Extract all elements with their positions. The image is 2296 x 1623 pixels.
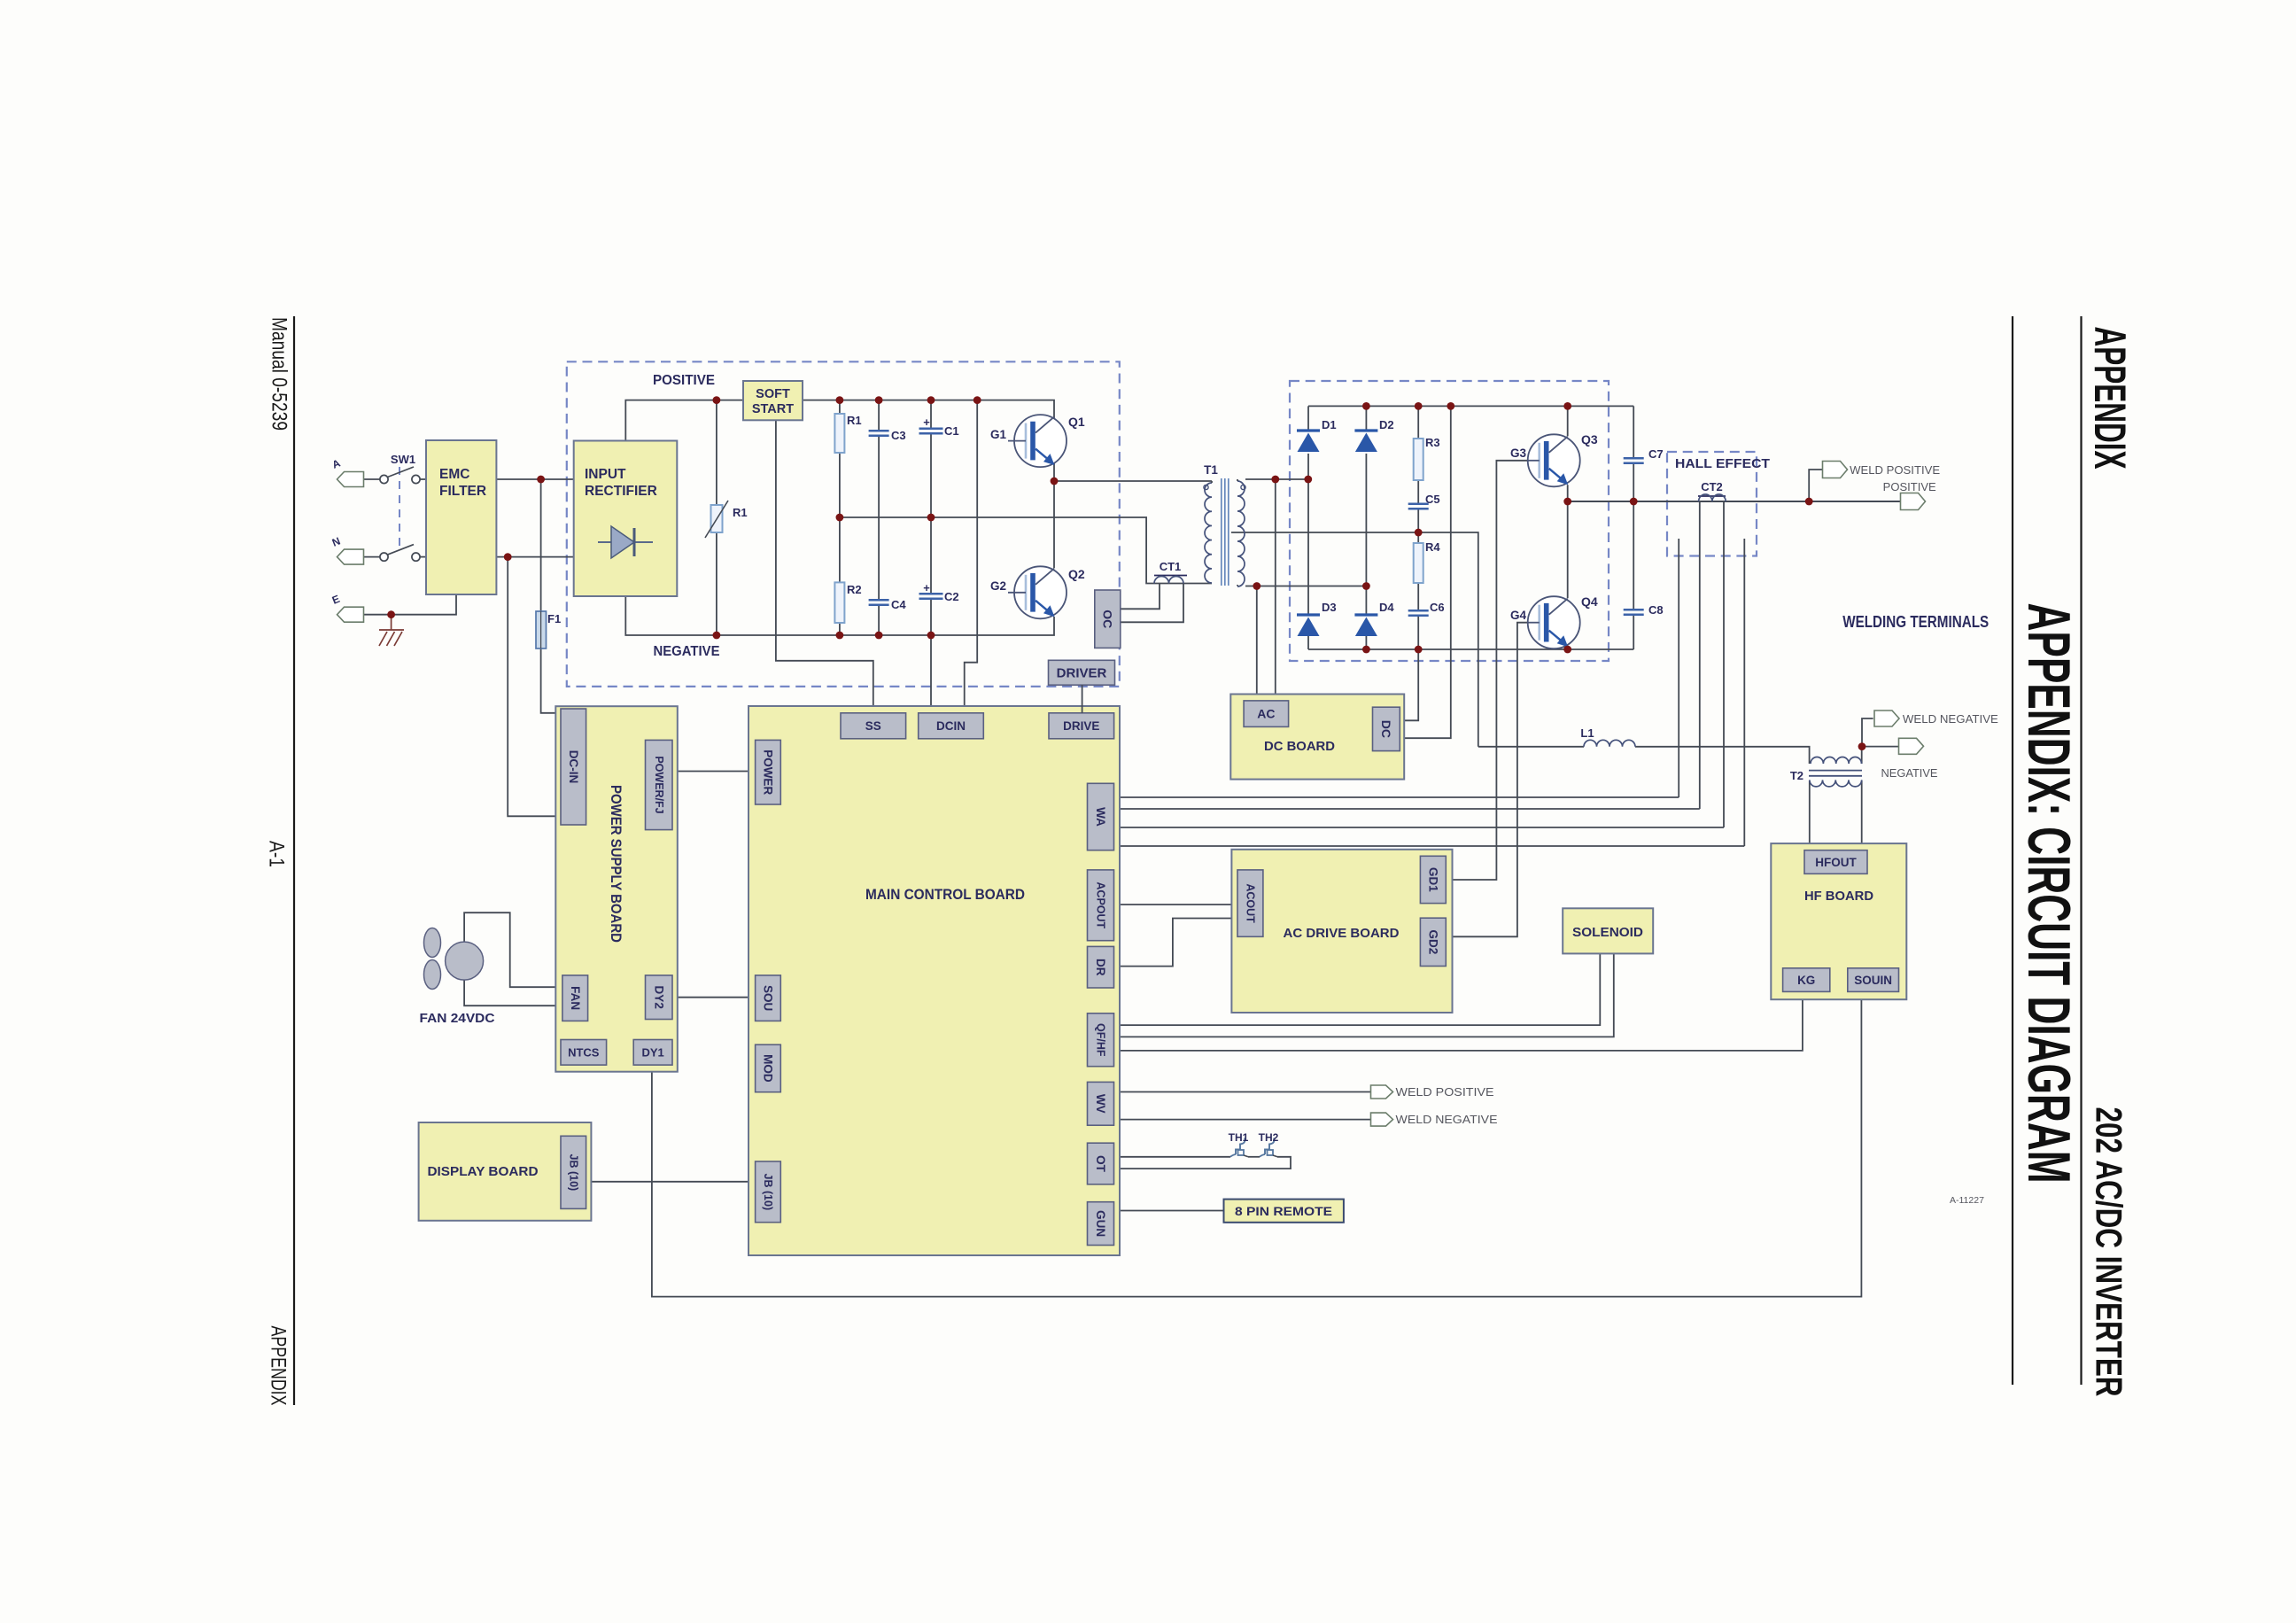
svg-text:OC: OC xyxy=(1100,610,1114,628)
svg-text:MOD: MOD xyxy=(761,1054,774,1083)
svg-text:GD2: GD2 xyxy=(1426,929,1439,954)
svg-text:Q1: Q1 xyxy=(1068,415,1085,429)
svg-text:WV: WV xyxy=(1094,1094,1107,1114)
svg-text:APPENDIX: APPENDIX xyxy=(2085,327,2135,470)
svg-text:G3: G3 xyxy=(1510,447,1527,460)
svg-text:R1: R1 xyxy=(847,414,862,427)
svg-text:DISPLAY BOARD: DISPLAY BOARD xyxy=(428,1164,539,1179)
svg-text:C5: C5 xyxy=(1425,493,1440,506)
svg-text:SOLENOID: SOLENOID xyxy=(1572,926,1643,940)
svg-text:POWER/FJ: POWER/FJ xyxy=(653,756,665,813)
svg-text:DR: DR xyxy=(1094,959,1107,976)
svg-text:D1: D1 xyxy=(1322,418,1337,431)
svg-text:KG: KG xyxy=(1797,974,1815,987)
svg-text:GD1: GD1 xyxy=(1426,867,1439,892)
svg-text:DRIVER: DRIVER xyxy=(1057,666,1107,681)
svg-text:SS: SS xyxy=(865,719,881,733)
svg-text:T2: T2 xyxy=(1790,769,1803,782)
svg-text:NEGATIVE: NEGATIVE xyxy=(1881,767,1938,780)
svg-text:C8: C8 xyxy=(1648,603,1664,617)
svg-text:T1: T1 xyxy=(1204,463,1218,477)
svg-text:C2: C2 xyxy=(944,590,959,603)
svg-text:DC-IN: DC-IN xyxy=(567,750,580,784)
svg-text:DCIN: DCIN xyxy=(936,719,966,733)
svg-text:TH2: TH2 xyxy=(1259,1131,1279,1144)
svg-text:Q3: Q3 xyxy=(1581,432,1598,447)
svg-text:SW1: SW1 xyxy=(391,453,415,466)
svg-text:SOU: SOU xyxy=(761,985,774,1011)
svg-text:POSITIVE: POSITIVE xyxy=(1883,481,1936,493)
svg-text:NTCS: NTCS xyxy=(568,1045,600,1059)
svg-text:+: + xyxy=(923,581,930,594)
svg-text:POWER SUPPLY BOARD: POWER SUPPLY BOARD xyxy=(608,785,624,943)
svg-text:F1: F1 xyxy=(547,612,561,625)
svg-text:SOFT: SOFT xyxy=(756,387,790,401)
svg-text:+: + xyxy=(923,415,930,429)
svg-text:APPENDIX: CIRCUIT DIAGRAM: APPENDIX: CIRCUIT DIAGRAM xyxy=(2015,603,2083,1184)
svg-text:FAN: FAN xyxy=(569,986,582,1010)
svg-text:AC: AC xyxy=(1257,707,1275,721)
svg-text:C6: C6 xyxy=(1430,601,1445,614)
svg-text:WELD POSITIVE: WELD POSITIVE xyxy=(1850,464,1940,477)
svg-text:CT2: CT2 xyxy=(1701,480,1723,493)
svg-text:POSITIVE: POSITIVE xyxy=(653,373,715,388)
svg-text:DRIVE: DRIVE xyxy=(1063,719,1099,733)
svg-text:HFOUT: HFOUT xyxy=(1815,856,1857,869)
svg-text:MAIN CONTROL BOARD: MAIN CONTROL BOARD xyxy=(865,886,1025,903)
svg-text:INPUT: INPUT xyxy=(585,467,626,482)
svg-text:DC: DC xyxy=(1379,720,1393,738)
svg-text:HF BOARD: HF BOARD xyxy=(1804,889,1873,904)
svg-text:DY1: DY1 xyxy=(641,1045,663,1059)
svg-text:D2: D2 xyxy=(1379,418,1394,431)
svg-text:G2: G2 xyxy=(990,579,1006,593)
svg-text:START: START xyxy=(752,402,794,416)
svg-text:NEGATIVE: NEGATIVE xyxy=(654,644,720,659)
svg-text:C7: C7 xyxy=(1648,447,1664,461)
svg-text:WELD NEGATIVE: WELD NEGATIVE xyxy=(1396,1114,1498,1126)
svg-text:Q2: Q2 xyxy=(1068,567,1085,581)
svg-text:RECTIFIER: RECTIFIER xyxy=(585,484,657,499)
svg-text:ACOUT: ACOUT xyxy=(1244,883,1256,923)
svg-text:WELD NEGATIVE: WELD NEGATIVE xyxy=(1903,713,1998,726)
svg-text:JB (10): JB (10) xyxy=(762,1174,774,1211)
svg-text:ACPOUT: ACPOUT xyxy=(1095,881,1107,928)
svg-text:FILTER: FILTER xyxy=(439,484,486,499)
svg-text:JB (10): JB (10) xyxy=(567,1154,579,1192)
svg-text:G4: G4 xyxy=(1510,609,1527,622)
svg-text:D3: D3 xyxy=(1322,601,1337,614)
svg-text:WA: WA xyxy=(1094,807,1107,827)
svg-text:D4: D4 xyxy=(1379,601,1394,614)
svg-text:C4: C4 xyxy=(891,598,906,611)
svg-text:R3: R3 xyxy=(1425,436,1440,449)
svg-text:A-11227: A-11227 xyxy=(1950,1195,1984,1206)
svg-text:Q4: Q4 xyxy=(1581,594,1598,609)
svg-text:APPENDIX: APPENDIX xyxy=(267,1326,291,1406)
svg-text:TH1: TH1 xyxy=(1229,1131,1249,1144)
svg-text:G1: G1 xyxy=(990,428,1007,441)
svg-text:R2: R2 xyxy=(847,583,862,596)
svg-text:C1: C1 xyxy=(944,424,959,438)
svg-text:L1: L1 xyxy=(1580,726,1594,740)
svg-text:DC BOARD: DC BOARD xyxy=(1264,739,1335,754)
svg-text:202 AC/DC INVERTER: 202 AC/DC INVERTER xyxy=(2089,1107,2130,1397)
svg-text:C3: C3 xyxy=(891,429,906,442)
svg-text:WELD POSITIVE: WELD POSITIVE xyxy=(1396,1086,1494,1099)
svg-text:R4: R4 xyxy=(1425,540,1440,554)
svg-text:AC DRIVE BOARD: AC DRIVE BOARD xyxy=(1284,926,1400,941)
svg-text:OT: OT xyxy=(1094,1155,1107,1173)
svg-text:WELDING TERMINALS: WELDING TERMINALS xyxy=(1842,613,1989,631)
svg-text:DY2: DY2 xyxy=(652,986,665,1009)
svg-text:HALL EFFECT: HALL EFFECT xyxy=(1675,456,1770,471)
svg-text:FAN 24VDC: FAN 24VDC xyxy=(420,1012,496,1026)
svg-text:R1: R1 xyxy=(733,506,748,519)
svg-text:GUN: GUN xyxy=(1094,1210,1107,1237)
svg-text:Manual 0-5239: Manual 0-5239 xyxy=(268,317,291,431)
svg-text:CT1: CT1 xyxy=(1160,560,1182,573)
svg-text:POWER: POWER xyxy=(761,749,774,795)
svg-text:EMC: EMC xyxy=(439,467,469,482)
svg-text:SOUIN: SOUIN xyxy=(1854,974,1892,987)
svg-text:QF/HF: QF/HF xyxy=(1095,1023,1107,1057)
svg-text:A-1: A-1 xyxy=(265,841,289,867)
svg-text:8 PIN REMOTE: 8 PIN REMOTE xyxy=(1235,1205,1332,1218)
